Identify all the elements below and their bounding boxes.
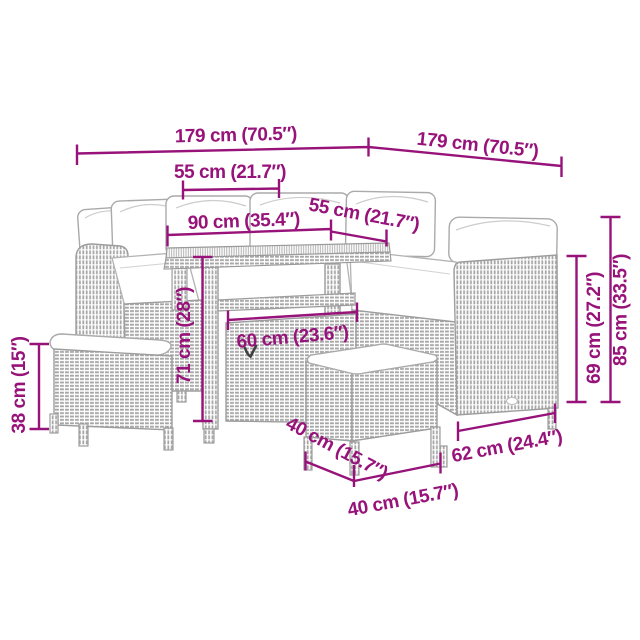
svg-text:55 cm (21.7″): 55 cm (21.7″) — [174, 162, 286, 183]
svg-text:85 cm (33.5″): 85 cm (33.5″) — [611, 254, 632, 366]
svg-text:38 cm (15″): 38 cm (15″) — [9, 336, 30, 433]
svg-text:69 cm (27.2″): 69 cm (27.2″) — [584, 272, 605, 384]
svg-text:179 cm (70.5″): 179 cm (70.5″) — [175, 124, 298, 148]
svg-text:90 cm (35.4″): 90 cm (35.4″) — [187, 209, 300, 234]
svg-text:71 cm (28″): 71 cm (28″) — [174, 287, 195, 384]
